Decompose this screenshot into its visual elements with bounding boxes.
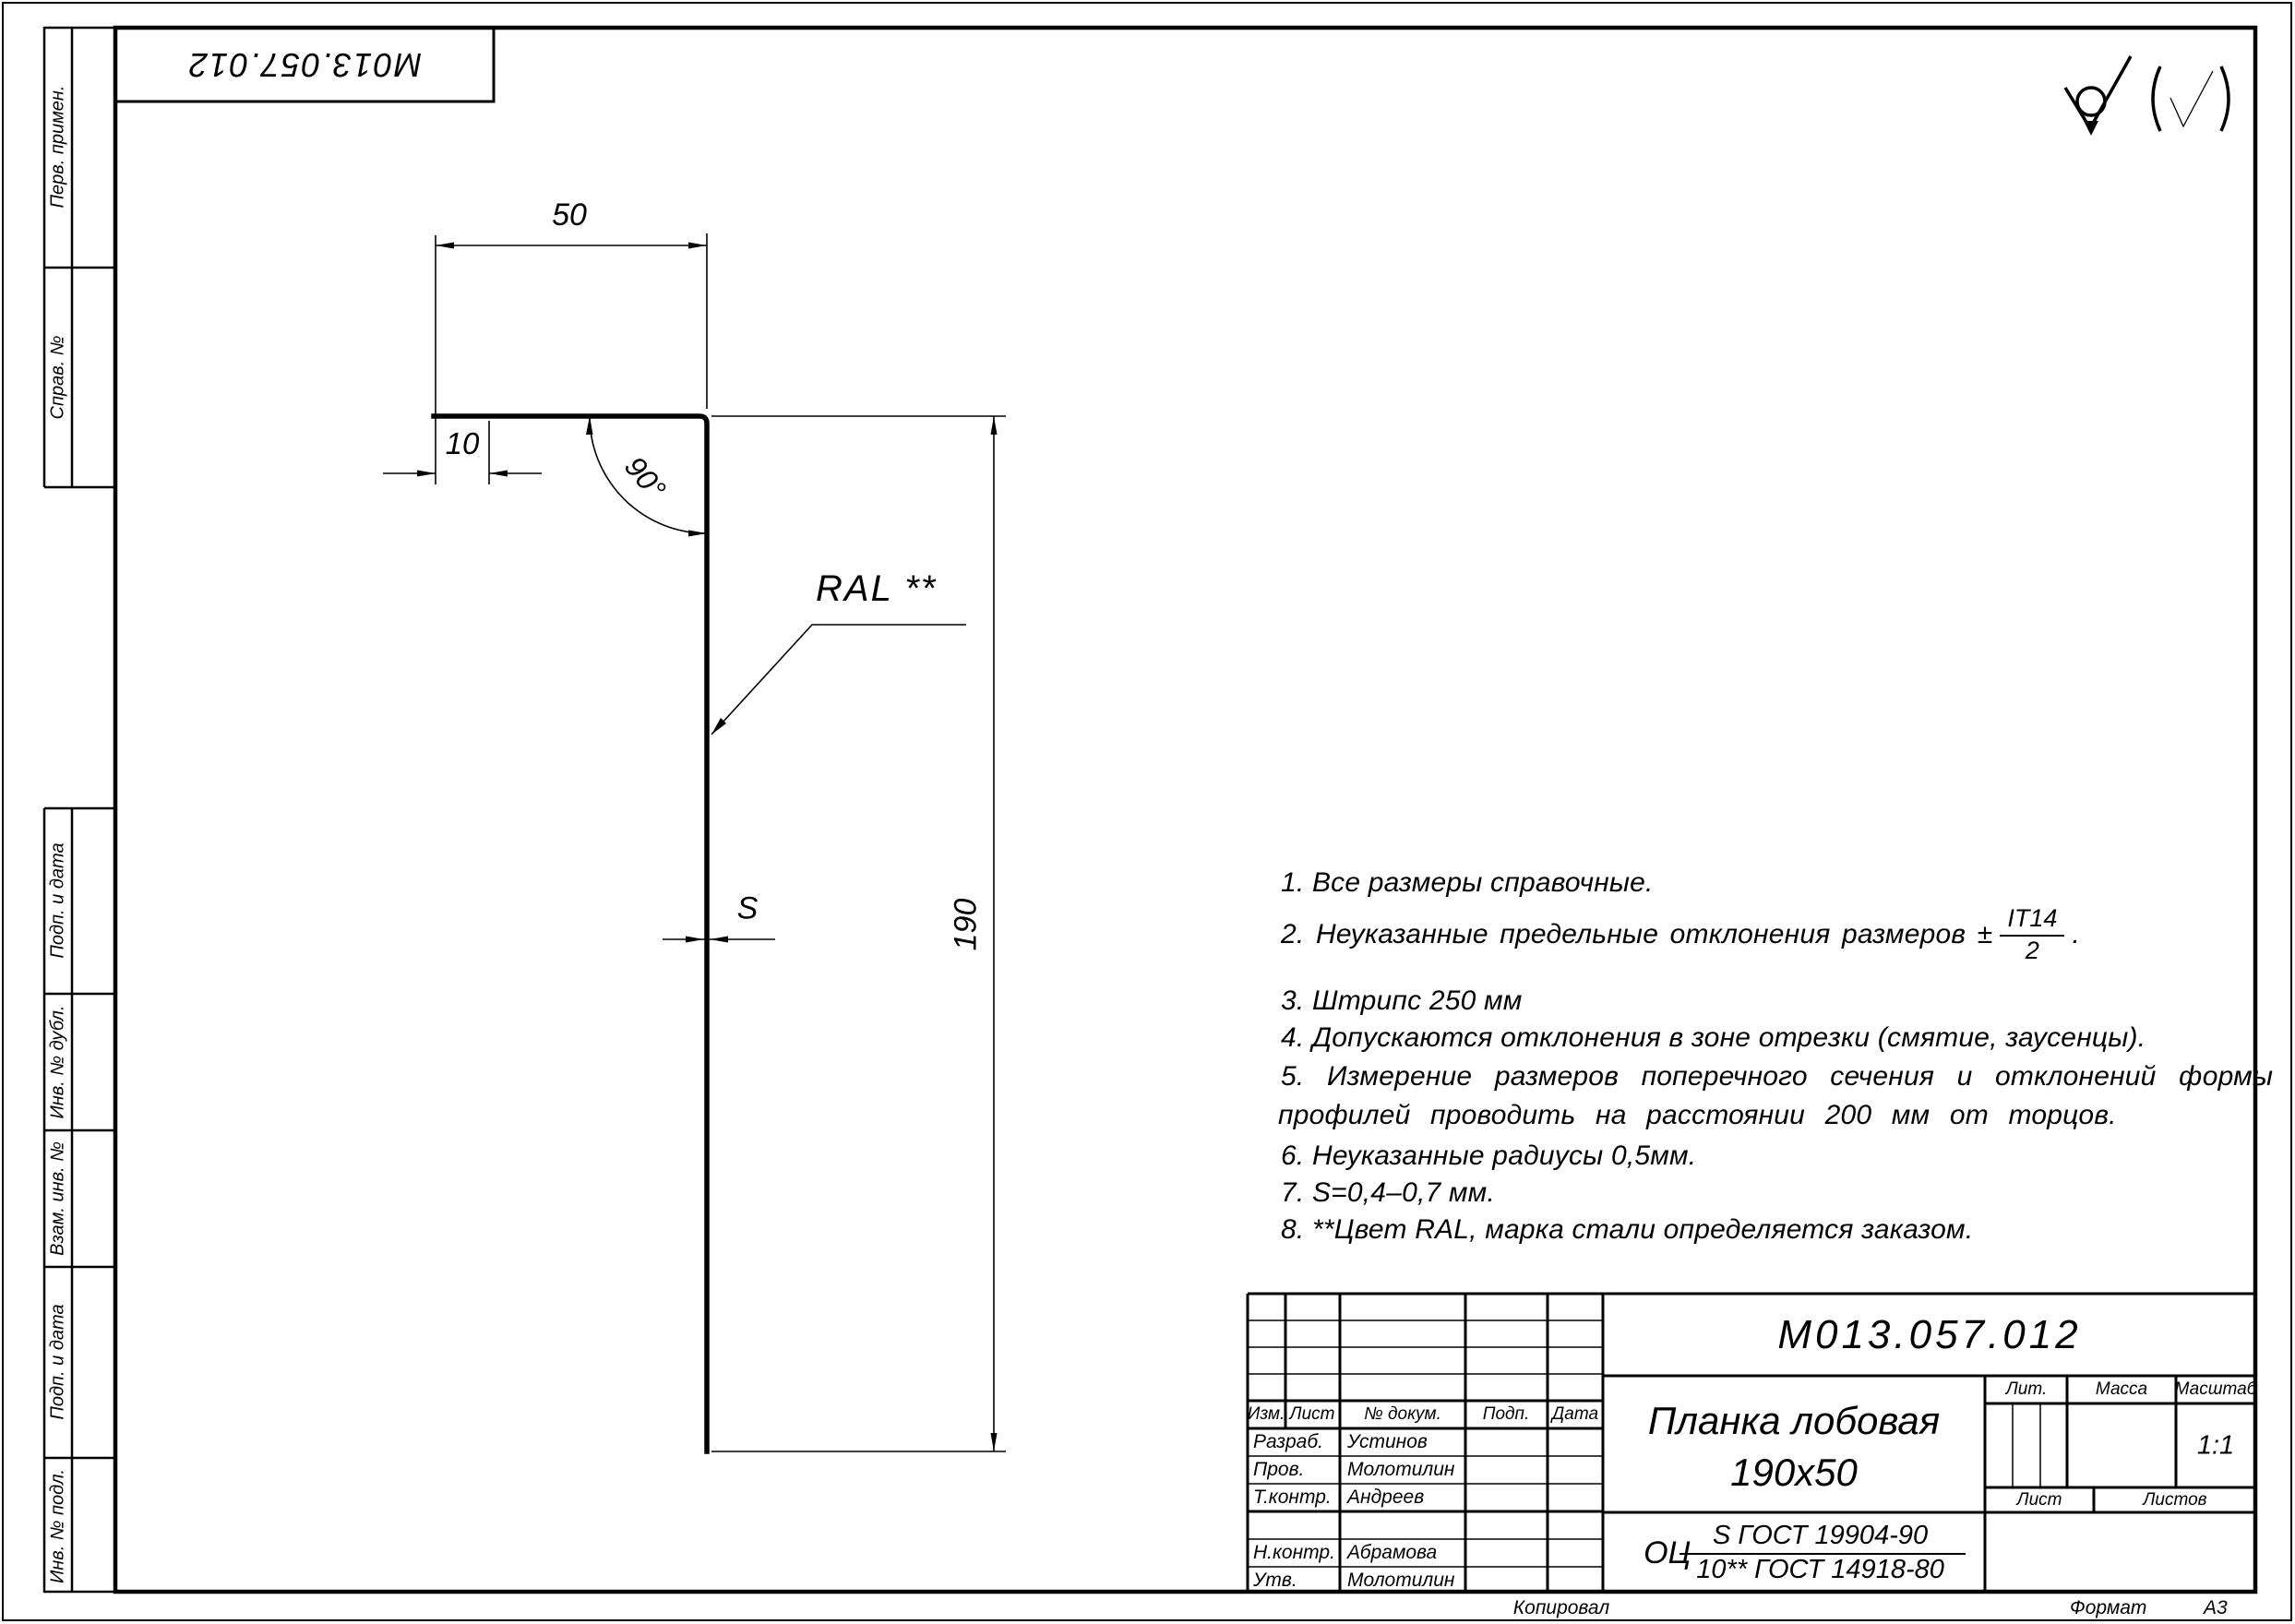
surface-finish-alt-icon	[2153, 66, 2229, 131]
surface-finish-icon	[2065, 56, 2131, 136]
margin-strip-label: Перв. примен.	[48, 86, 69, 209]
dim-flange-label: 10	[446, 426, 480, 461]
tb-lit-label: Лит.	[2006, 1379, 2048, 1400]
tb-col-doc: № докум.	[1364, 1404, 1441, 1425]
tb-name: Молотилин	[1347, 1459, 1454, 1481]
margin-strip-label: Инв. № подл.	[48, 1469, 69, 1583]
note-line-with-fraction: 2. Неуказанные предельные отклонения раз…	[1281, 904, 2080, 965]
tb-role: Разраб.	[1253, 1431, 1323, 1453]
tb-col-data: Дата	[1552, 1404, 1598, 1425]
note-line: 5. Измерение размеров поперечного сечени…	[1281, 1061, 2273, 1093]
note-2-suffix: .	[2072, 919, 2080, 950]
tb-sheets-label: Листов	[2143, 1490, 2206, 1511]
tb-col-podp: Подп.	[1483, 1404, 1530, 1425]
tb-doc-number: М013.057.012	[1777, 1312, 2081, 1358]
tb-scale-label: Масштаб	[2175, 1379, 2257, 1400]
tb-role: Пров.	[1253, 1459, 1304, 1481]
tb-col-izm: Изм.	[1248, 1404, 1285, 1425]
tb-part-name-line2: 190х50	[1730, 1451, 1858, 1495]
tb-material-denominator: 10** ГОСТ 14918-80	[1696, 1555, 1944, 1585]
tb-name: Андреев	[1347, 1487, 1424, 1509]
note-line: 6. Неуказанные радиусы 0,5мм.	[1281, 1140, 1696, 1172]
coating-leader-line	[711, 625, 966, 734]
dim-width-label: 50	[552, 197, 587, 233]
stamp-code: М013.057.012	[187, 45, 422, 84]
drawing-sheet: М013.057.012 Перв. примен. Справ. № Подп…	[0, 0, 2295, 1624]
tb-name: Устинов	[1347, 1431, 1428, 1453]
note-line: 3. Штрипс 250 мм	[1281, 985, 1523, 1017]
tb-role: Утв.	[1253, 1570, 1297, 1592]
tb-material-numerator: S ГОСТ 19904-90	[1709, 1521, 1931, 1554]
tb-name: Молотилин	[1347, 1570, 1454, 1592]
note-line: 1. Все размеры справочные.	[1281, 867, 1654, 899]
drawing-geometry	[0, 0, 2295, 1624]
dim-thickness-label: S	[737, 891, 759, 927]
profile-outline	[434, 416, 707, 1451]
margin-strip-label: Подп. и дата	[48, 842, 69, 958]
tb-name: Абрамова	[1347, 1542, 1437, 1564]
tb-material: ОЦ S ГОСТ 19904-90 10** ГОСТ 14918-80	[1611, 1514, 1977, 1592]
note-line: 4. Допускаются отклонения в зоне отрезки…	[1281, 1022, 2146, 1054]
tb-part-name-line1: Планка лобовая	[1648, 1399, 1940, 1443]
tb-col-list: Лист	[1290, 1404, 1335, 1425]
margin-strip-label: Инв. № дубл.	[48, 1006, 69, 1119]
tb-scale-value: 1:1	[2197, 1431, 2234, 1462]
note-line: профилей проводить на расстоянии 200 мм …	[1278, 1100, 2117, 1131]
note-line: 7. S=0,4–0,7 мм.	[1281, 1177, 1495, 1209]
margin-strip-label: Взам. инв. №	[48, 1141, 69, 1256]
note-2-prefix: 2. Неуказанные предельные отклонения раз…	[1281, 919, 1992, 950]
tb-sheet-label: Лист	[2017, 1490, 2062, 1511]
tb-role: Н.контр.	[1253, 1542, 1335, 1564]
margin-strip-label: Справ. №	[48, 336, 69, 420]
note-line: 8. **Цвет RAL, марка стали определяется …	[1281, 1214, 1973, 1246]
coating-label: RAL **	[816, 568, 937, 610]
note-2-fraction-denominator: 2	[2026, 937, 2039, 965]
format-label: Формат	[2070, 1597, 2146, 1619]
dim-height-label: 190	[949, 899, 985, 951]
note-2-fraction: IT14 2	[2000, 904, 2064, 965]
tb-mass-label: Масса	[2096, 1379, 2147, 1400]
format-value: А3	[2204, 1597, 2228, 1619]
note-2-fraction-numerator: IT14	[2000, 904, 2064, 937]
tb-material-prefix: ОЦ	[1644, 1535, 1691, 1571]
margin-strip-label: Подп. и дата	[48, 1304, 69, 1419]
tb-role: Т.контр.	[1253, 1487, 1332, 1509]
copied-label: Копировал	[1513, 1597, 1609, 1619]
